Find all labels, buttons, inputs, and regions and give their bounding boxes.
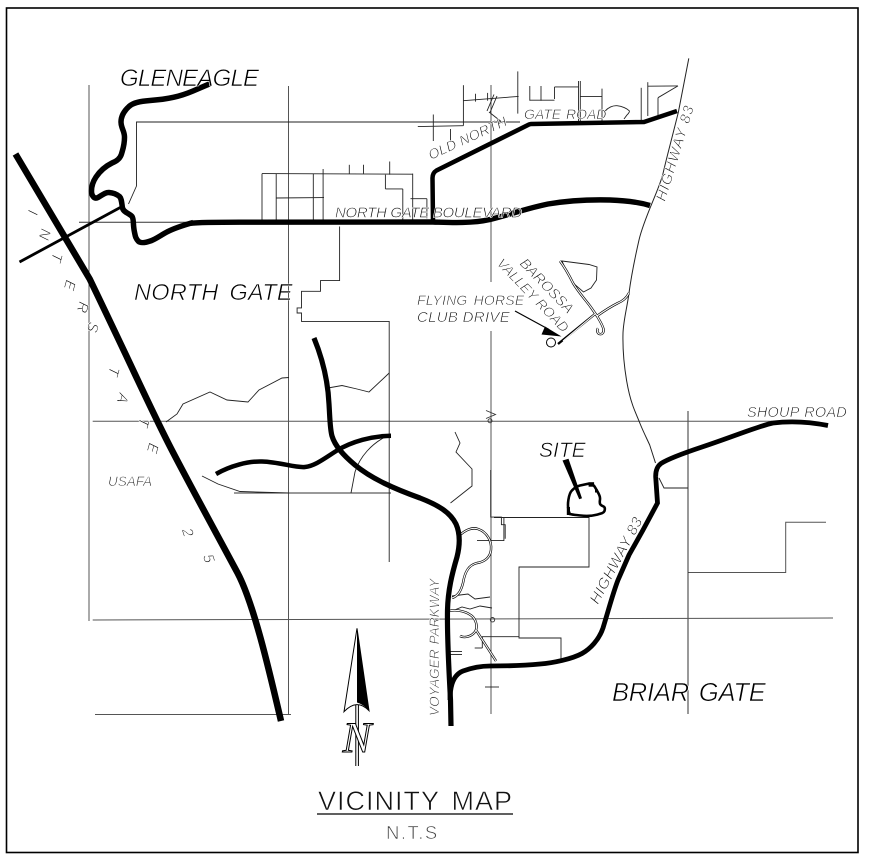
svg-text:BRIAR GATE: BRIAR GATE bbox=[612, 679, 767, 707]
svg-text:NORTH GATE BOULEVARD: NORTH GATE BOULEVARD bbox=[335, 205, 522, 222]
svg-text:GATE ROAD: GATE ROAD bbox=[524, 106, 606, 122]
svg-text:USAFA: USAFA bbox=[108, 474, 152, 489]
svg-text:N: N bbox=[342, 715, 374, 762]
svg-text:VOYAGER PARKWAY: VOYAGER PARKWAY bbox=[427, 578, 442, 716]
svg-text:VICINITY MAP: VICINITY MAP bbox=[318, 786, 513, 816]
svg-text:SITE: SITE bbox=[539, 439, 587, 462]
svg-text:N.T.S: N.T.S bbox=[386, 822, 439, 843]
svg-text:SHOUP ROAD: SHOUP ROAD bbox=[747, 405, 847, 421]
svg-text:FLYING HORSE: FLYING HORSE bbox=[417, 292, 525, 308]
svg-text:NORTH GATE: NORTH GATE bbox=[134, 279, 293, 305]
svg-text:CLUB DRIVE: CLUB DRIVE bbox=[417, 309, 511, 326]
svg-text:GLENEAGLE: GLENEAGLE bbox=[120, 65, 260, 92]
